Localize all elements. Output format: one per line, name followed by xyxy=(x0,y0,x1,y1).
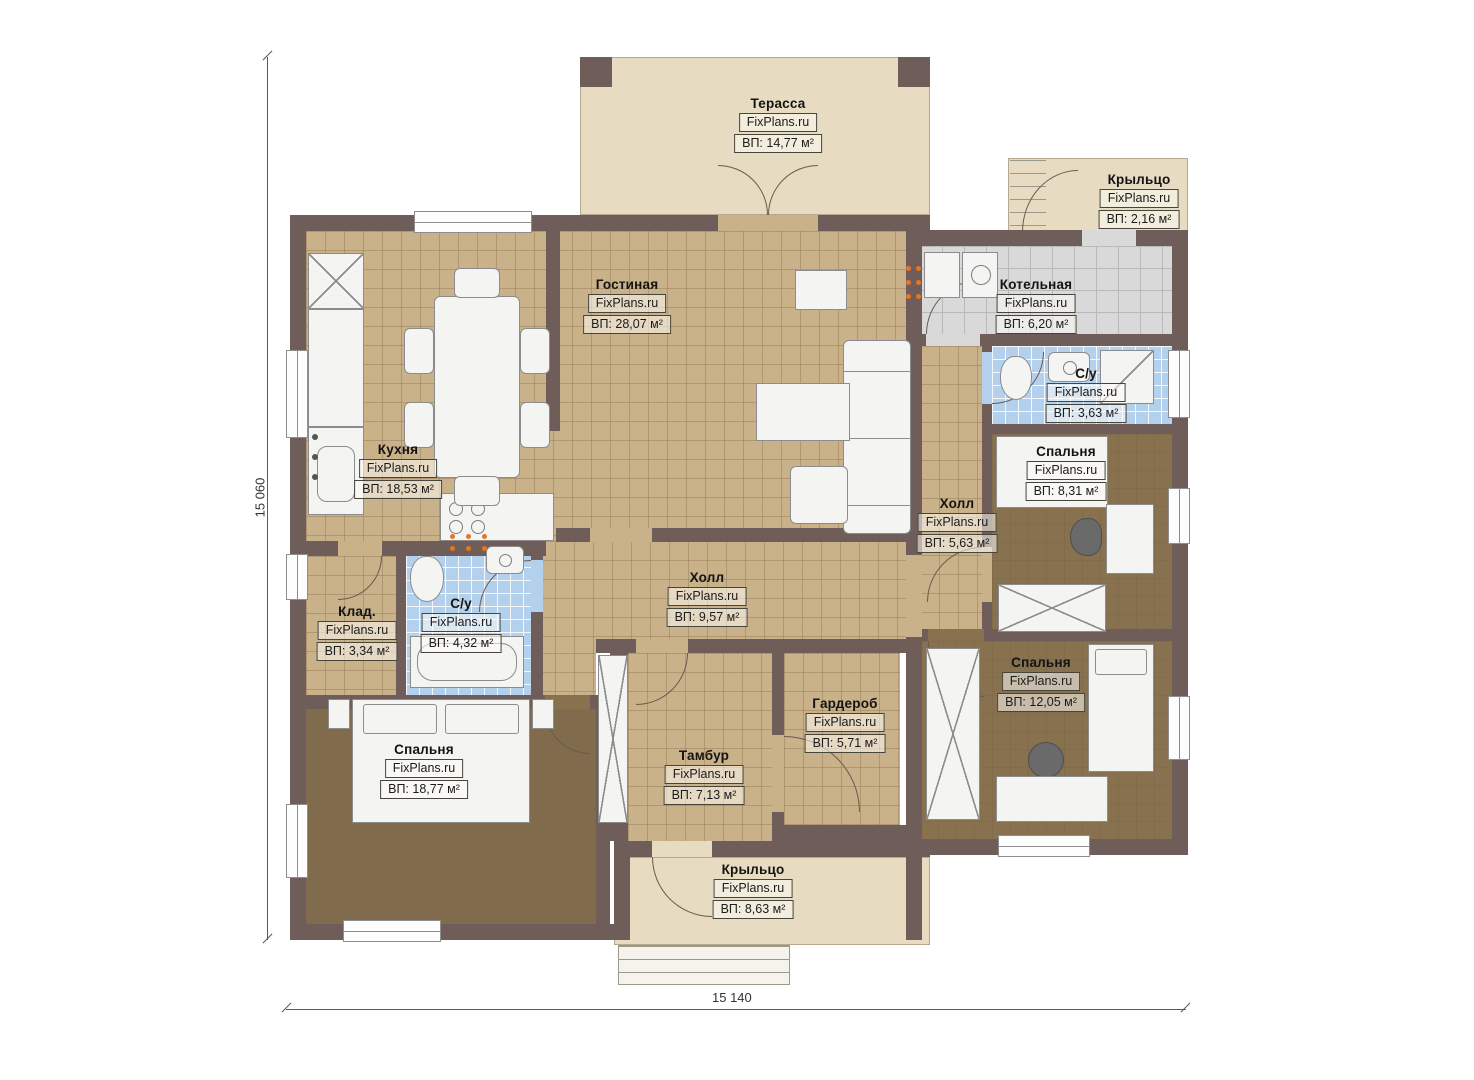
dimension-width: 15 140 xyxy=(712,990,752,1005)
toilet xyxy=(1000,356,1032,400)
watermark: FixPlans.ru xyxy=(1047,383,1126,402)
room-area: ВП: 14,77 м² xyxy=(734,134,822,153)
wall-wardrobe-bottom xyxy=(784,825,916,841)
window xyxy=(286,804,308,878)
room-label-bedroom-rb: Спальня FixPlans.ru ВП: 12,05 м² xyxy=(997,655,1085,712)
room-label-hall-right: Холл FixPlans.ru ВП: 5,63 м² xyxy=(917,496,998,553)
window xyxy=(286,554,308,600)
opening-storage-door xyxy=(338,541,382,556)
wall-bath-left-l xyxy=(396,541,406,695)
coffee-table xyxy=(756,383,850,441)
room-label-hall-main: Холл FixPlans.ru ВП: 9,57 м² xyxy=(667,570,748,627)
radiator-dots xyxy=(906,280,911,285)
wall-bath-right-bottom xyxy=(992,424,1172,434)
chair xyxy=(520,328,550,374)
room-area: ВП: 5,63 м² xyxy=(917,534,998,553)
room-label-bedroom-left: Спальня FixPlans.ru ВП: 18,77 м² xyxy=(380,742,468,799)
wardrobe-cabinet xyxy=(998,584,1106,632)
window xyxy=(343,920,441,942)
room-name: Крыльцо xyxy=(722,862,785,877)
watermark: FixPlans.ru xyxy=(739,113,818,132)
window xyxy=(414,211,532,233)
room-area: ВП: 8,63 м² xyxy=(713,900,794,919)
watermark: FixPlans.ru xyxy=(714,879,793,898)
watermark: FixPlans.ru xyxy=(422,613,501,632)
chair xyxy=(404,328,434,374)
washbasin xyxy=(486,546,524,574)
bed xyxy=(1088,644,1154,772)
opening-entrance-door xyxy=(652,841,712,857)
room-name: С/у xyxy=(1075,366,1097,381)
sofa xyxy=(843,340,911,534)
watermark: FixPlans.ru xyxy=(588,294,667,313)
room-area: ВП: 6,20 м² xyxy=(996,315,1077,334)
watermark: FixPlans.ru xyxy=(359,459,438,478)
room-name: Гостиная xyxy=(596,277,659,292)
room-area: ВП: 3,63 м² xyxy=(1046,404,1127,423)
room-area: ВП: 7,13 м² xyxy=(664,786,745,805)
opening-bedroom-rb-door xyxy=(928,629,984,641)
room-label-bedroom-rt: Спальня FixPlans.ru ВП: 8,31 м² xyxy=(1026,444,1107,501)
porch-bottom-steps xyxy=(618,945,790,985)
dining-table xyxy=(434,296,520,478)
room-name: Терасса xyxy=(751,96,806,111)
room-label-bath-left: С/у FixPlans.ru ВП: 4,32 м² xyxy=(421,596,502,653)
room-area: ВП: 2,16 м² xyxy=(1099,210,1180,229)
tv-stand xyxy=(795,270,847,310)
window xyxy=(998,835,1090,857)
watermark: FixPlans.ru xyxy=(997,294,1076,313)
opening-living-hall xyxy=(590,528,652,542)
dimension-height: 15 060 xyxy=(252,478,267,518)
room-area: ВП: 4,32 м² xyxy=(421,634,502,653)
window xyxy=(286,350,308,438)
floor-plan-canvas: Терасса FixPlans.ru ВП: 14,77 м² Крыльцо… xyxy=(0,0,1474,1080)
chair xyxy=(454,476,500,506)
wall-wing-top xyxy=(920,230,1188,246)
room-name: Гардероб xyxy=(812,696,877,711)
opening-boiler-door xyxy=(926,334,980,346)
window xyxy=(1168,488,1190,544)
room-name: Холл xyxy=(940,496,975,511)
room-area: ВП: 5,71 м² xyxy=(805,734,886,753)
opening-bath-right-door xyxy=(982,352,992,404)
watermark: FixPlans.ru xyxy=(318,621,397,640)
room-area: ВП: 18,53 м² xyxy=(354,480,442,499)
watermark: FixPlans.ru xyxy=(668,587,747,606)
room-label-porch-bottom: Крыльцо FixPlans.ru ВП: 8,63 м² xyxy=(713,862,794,919)
chair xyxy=(1028,742,1064,778)
watermark: FixPlans.ru xyxy=(1002,672,1081,691)
opening-porch-top-door xyxy=(1082,230,1136,246)
window xyxy=(1168,696,1190,760)
room-area: ВП: 3,34 м² xyxy=(317,642,398,661)
opening-tambour-door xyxy=(636,639,688,653)
fridge xyxy=(308,253,364,309)
room-name: С/у xyxy=(450,596,472,611)
opening-wardrobe-door xyxy=(772,735,784,812)
room-area: ВП: 8,31 м² xyxy=(1026,482,1107,501)
opening-bedroom-rt-door xyxy=(982,547,992,602)
washer xyxy=(924,252,960,298)
room-label-bath-right: С/у FixPlans.ru ВП: 3,63 м² xyxy=(1046,366,1127,423)
room-label-wardrobe: Гардероб FixPlans.ru ВП: 5,71 м² xyxy=(805,696,886,753)
room-label-tambour: Тамбур FixPlans.ru ВП: 7,13 м² xyxy=(664,748,745,805)
opening-bath-left-door xyxy=(531,560,543,612)
room-label-porch-top: Крыльцо FixPlans.ru ВП: 2,16 м² xyxy=(1099,172,1180,229)
armchair xyxy=(790,466,848,524)
radiator-dots xyxy=(916,280,921,285)
dimension-line-horizontal xyxy=(286,1009,1186,1010)
radiator-dots xyxy=(466,534,471,539)
room-area: ВП: 12,05 м² xyxy=(997,693,1085,712)
room-area: ВП: 28,07 м² xyxy=(583,315,671,334)
room-area: ВП: 9,57 м² xyxy=(667,608,748,627)
desk xyxy=(996,776,1108,822)
room-label-storage: Клад. FixPlans.ru ВП: 3,34 м² xyxy=(317,604,398,661)
radiator-dots xyxy=(916,266,921,271)
room-name: Крыльцо xyxy=(1108,172,1171,187)
boiler-sink xyxy=(962,252,998,298)
wardrobe-cabinet xyxy=(598,655,628,823)
room-name: Клад. xyxy=(338,604,376,619)
watermark: FixPlans.ru xyxy=(385,759,464,778)
nightstand xyxy=(532,699,554,729)
room-name: Кухня xyxy=(378,442,418,457)
radiator-dots xyxy=(906,294,911,299)
watermark: FixPlans.ru xyxy=(918,513,997,532)
wall-outer-bottom-left xyxy=(290,924,630,940)
room-label-boiler: Котельная FixPlans.ru ВП: 6,20 м² xyxy=(996,277,1077,334)
radiator-dots xyxy=(916,294,921,299)
radiator-dots xyxy=(906,266,911,271)
wall-outer-top xyxy=(290,215,930,231)
room-name: Спальня xyxy=(1036,444,1096,459)
radiator-dots xyxy=(466,546,471,551)
kitchen-counter xyxy=(308,309,364,427)
room-name: Спальня xyxy=(1011,655,1071,670)
radiator-dots xyxy=(450,546,455,551)
room-label-living: Гостиная FixPlans.ru ВП: 28,07 м² xyxy=(583,277,671,334)
watermark: FixPlans.ru xyxy=(806,713,885,732)
watermark: FixPlans.ru xyxy=(1100,189,1179,208)
chair xyxy=(520,402,550,448)
desk xyxy=(1106,504,1154,574)
room-name: Котельная xyxy=(1000,277,1072,292)
dimension-tick xyxy=(282,1003,292,1013)
window xyxy=(1168,350,1190,418)
wardrobe-cabinet xyxy=(926,648,980,820)
terrace-post xyxy=(580,57,612,87)
radiator-dots xyxy=(482,534,487,539)
nightstand xyxy=(328,699,350,729)
room-name: Спальня xyxy=(394,742,454,757)
room-name: Тамбур xyxy=(679,748,729,763)
terrace-post xyxy=(898,57,930,87)
watermark: FixPlans.ru xyxy=(665,765,744,784)
room-label-terrace: Терасса FixPlans.ru ВП: 14,77 м² xyxy=(734,96,822,153)
room-area: ВП: 18,77 м² xyxy=(380,780,468,799)
chair xyxy=(454,268,500,298)
opening-terrace-door xyxy=(718,215,818,231)
dimension-tick xyxy=(1181,1003,1191,1013)
room-name: Холл xyxy=(690,570,725,585)
watermark: FixPlans.ru xyxy=(1027,461,1106,480)
opening-spine-hall xyxy=(906,555,922,637)
room-label-kitchen: Кухня FixPlans.ru ВП: 18,53 м² xyxy=(354,442,442,499)
radiator-dots xyxy=(450,534,455,539)
chair xyxy=(1070,518,1102,556)
